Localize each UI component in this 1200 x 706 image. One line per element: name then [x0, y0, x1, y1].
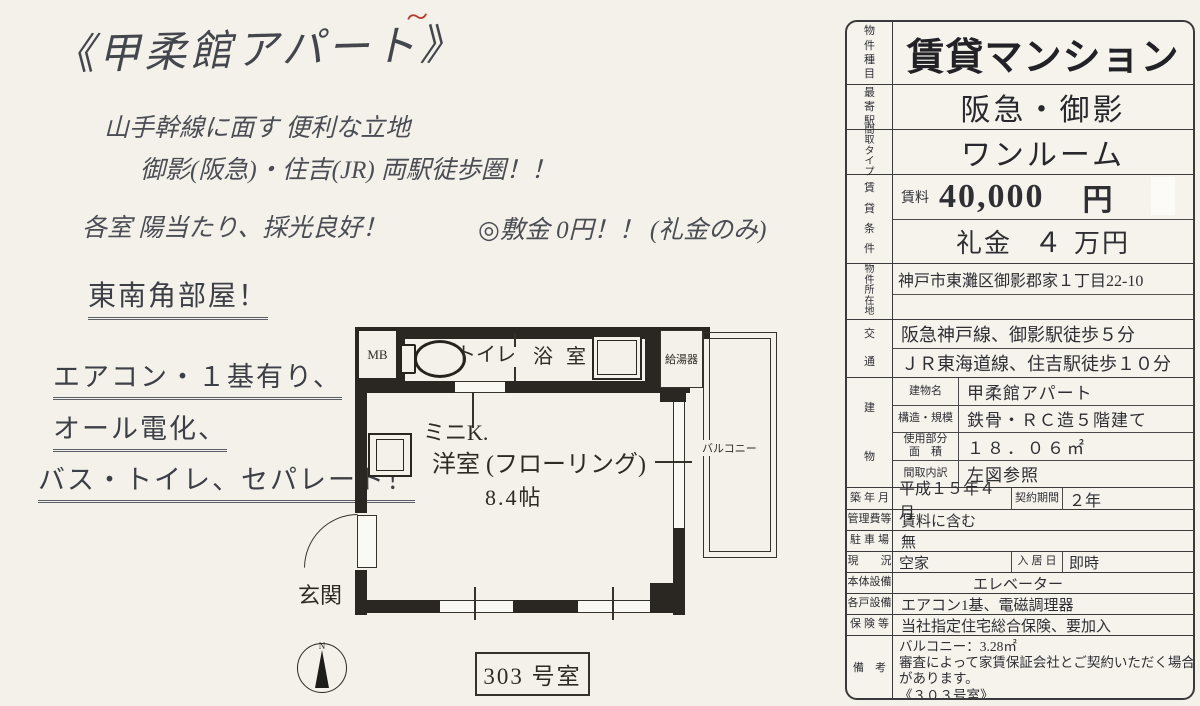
status-value: 空家 [893, 552, 1011, 572]
layout-type-value: ワンルーム [961, 130, 1125, 174]
movein-label: 入 居 日 [1017, 555, 1056, 568]
page-title: 《甲柔館アパート》 [51, 11, 466, 83]
contract-value: ２年 [1063, 488, 1193, 509]
wall-bottom-2 [513, 600, 578, 613]
row-parking: 駐 車 場 無 [847, 530, 1193, 551]
remarks-header: 備 考 [847, 636, 893, 700]
layout-type-header: 間取タイプ [847, 130, 893, 174]
window-tick-right [655, 461, 692, 463]
row-unit-equipment: 各戸設備 エアコン1基、電磁調理器 [847, 593, 1193, 614]
room-number-label: 303 号室 [483, 657, 581, 691]
row-remarks: 備 考 バルコニー：3.28㎡ 審査によって家賃保証会社とご契約いただく場合 が… [847, 635, 1193, 700]
row-property-type: 物件種目 賃貸マンション [847, 22, 1193, 84]
whiteout-mark [1151, 177, 1175, 215]
structure-value: 鉄骨・ＲＣ造５階建て [959, 406, 1193, 433]
mb-box: MB [359, 331, 396, 378]
row-access: 交通 阪急神戸線、御影駅徒歩５分 ＪＲ東海道線、住吉駅徒歩１０分 [847, 319, 1193, 377]
rent-unit: 円 [1083, 175, 1113, 219]
row-layout-type: 間取タイプ ワンルーム [847, 129, 1193, 174]
flyer-page: 〜 《甲柔館アパート》 山手幹線に面す 便利な立地 御影(阪急)・住吉(JR) … [0, 0, 1200, 706]
nearest-station-header: 最寄駅 [847, 85, 893, 129]
area-row: 使用部分 面 積 １８．０６㎡ [893, 432, 1193, 460]
area-value: １８．０６㎡ [959, 433, 1193, 460]
bldg-equip-header-text: 本体設備 [848, 576, 892, 589]
key-money-amount: ４ [1034, 221, 1064, 261]
property-type-value: 賃貸マンション [906, 26, 1179, 81]
built-header: 築 年 月 [847, 488, 893, 509]
compass-north-label: N [319, 641, 326, 651]
structure-row: 構造・規模 鉄骨・ＲＣ造５階建て [893, 405, 1193, 433]
catch-line-stations: 御影(阪急)・住吉(JR) 両駅徒歩圏！！ [140, 150, 556, 186]
kitchen-sink-icon [368, 433, 412, 477]
rent-row: 賃料 40,000 円 [893, 175, 1193, 219]
status-header: 現 況 [847, 552, 893, 572]
room-size-label: 8.4帖 [485, 480, 543, 512]
access-header-text: 交通 [863, 321, 877, 376]
insurance-header-text: 保 険 等 [850, 618, 889, 631]
feature-all-electric: オール電化、 [53, 407, 227, 452]
mgmt-fee-header: 管理費等 [847, 510, 893, 530]
area-label: 使用部分 面 積 [904, 433, 948, 459]
movein-value: 即時 [1063, 552, 1193, 572]
toilet-label: トイレ [456, 338, 516, 367]
deposit-note: ◎敷金 0円！！ (礼金のみ) [478, 210, 766, 246]
wall-bath-heater [645, 327, 660, 390]
key-money-unit: 万円 [1074, 223, 1130, 260]
entrance-label: 玄関 [298, 578, 342, 610]
toilet-bath-divider-bottom [514, 367, 516, 381]
row-building: 建物 建物名 甲柔館アパート 構造・規模 鉄骨・ＲＣ造５階建て 使用部分 面 積… [847, 377, 1193, 487]
unit-equip-header-text: 各戸設備 [848, 597, 892, 610]
access-header: 交通 [847, 320, 893, 377]
remark-room-number: 《３０３号室》 [899, 688, 1195, 700]
balcony-label: バルコニー [700, 440, 759, 456]
rental-terms-header-text: 賃貸条件 [863, 178, 877, 259]
row-built: 築 年 月 平成１５年４月 契約期間 ２年 [847, 487, 1193, 509]
wall-bottom-1 [355, 600, 440, 613]
bath-label: 浴 室 [533, 340, 590, 369]
wall-under-heater [660, 388, 686, 402]
row-status: 現 況 空家 入 居 日 即時 [847, 551, 1193, 572]
catch-line-sunlight: 各室 陽当たり、採光良好！ [82, 208, 387, 244]
key-money-row: 礼金 ４ 万円 [893, 219, 1193, 262]
parking-header-text: 駐 車 場 [850, 534, 889, 547]
remark-balcony: バルコニー：3.28㎡ [899, 639, 1195, 655]
row-nearest-station: 最寄駅 阪急・御影 [847, 84, 1193, 129]
address-empty-line [893, 295, 1193, 319]
unit-equip-header: 各戸設備 [847, 594, 893, 614]
bathtub-inner [597, 340, 637, 375]
status-header-text: 現 況 [848, 555, 892, 568]
access-line-2: ＪＲ東海道線、住吉駅徒歩１０分 [893, 349, 1193, 377]
mgmt-fee-header-text: 管理費等 [848, 513, 892, 526]
water-heater-box: 給湯器 [660, 330, 703, 388]
property-spec-table: 物件種目 賃貸マンション 最寄駅 阪急・御影 間取タイプ ワンルーム 賃貸条件 … [845, 20, 1195, 700]
nearest-station-value: 阪急・御影 [961, 85, 1126, 129]
window-bottom-1 [440, 600, 513, 613]
feature-corner-room: 東南角部屋！ [88, 274, 268, 320]
rent-value: 40,000 [939, 178, 1045, 216]
compass-icon: N [297, 643, 347, 693]
building-name-row: 建物名 甲柔館アパート [893, 378, 1193, 405]
bathtub-icon [592, 335, 642, 380]
insurance-value: 当社指定住宅総合保険、要加入 [893, 615, 1193, 635]
rent-label: 賃料 [901, 187, 929, 207]
window-bottom-2 [578, 600, 651, 613]
toilet-bath-divider-top [514, 333, 516, 347]
row-insurance: 保 険 等 当社指定住宅総合保険、要加入 [847, 614, 1193, 635]
bldg-equip-header: 本体設備 [847, 573, 893, 593]
layout-type-header-text: 間取タイプ [863, 126, 877, 179]
door-gap-kitchen [455, 381, 505, 393]
building-header: 建物 [847, 378, 893, 487]
rental-terms-header: 賃貸条件 [847, 175, 893, 263]
property-type-header-text: 物件種目 [863, 24, 877, 81]
window-tick-2 [612, 587, 614, 620]
key-money-label: 礼金 [956, 223, 1012, 260]
remarks-header-text: 備 考 [853, 662, 886, 675]
building-header-text: 建物 [863, 384, 877, 481]
mini-kitchen-label: ミニK. [423, 415, 488, 447]
room-number-box: 303 号室 [475, 652, 590, 696]
built-header-text: 築 年 月 [850, 492, 889, 505]
entrance-door-arc [304, 514, 358, 568]
floor-plan: MB トイレ 浴 室 給湯器 バルコニー ミニK. 洋室 (フローリング) 8.… [280, 320, 800, 706]
water-heater-label: 給湯器 [665, 351, 698, 367]
parking-value: 無 [893, 531, 1193, 551]
parking-header: 駐 車 場 [847, 531, 893, 551]
catch-line-location: 山手幹線に面す 便利な立地 [104, 108, 410, 144]
main-room-label: 洋室 (フローリング) [432, 444, 646, 479]
address-value: 神戸市東灘区御影郡家１丁目22-10 [893, 264, 1193, 295]
window-tick-1 [474, 587, 476, 620]
insurance-header: 保 険 等 [847, 615, 893, 635]
row-address: 物件所在地 神戸市東灘区御影郡家１丁目22-10 [847, 263, 1193, 319]
access-line-1: 阪急神戸線、御影駅徒歩５分 [893, 320, 1193, 349]
address-header: 物件所在地 [847, 264, 893, 319]
structure-label: 構造・規模 [898, 412, 953, 425]
wall-corner-block [650, 583, 685, 613]
unit-equip-value: エアコン1基、電磁調理器 [893, 594, 1193, 614]
window-right [673, 400, 685, 528]
row-building-equipment: 本体設備 エレベーター [847, 572, 1193, 593]
kitchen-sink-inner [376, 439, 404, 471]
building-name-label: 建物名 [909, 385, 942, 398]
row-rental-terms: 賃貸条件 賃料 40,000 円 礼金 ４ 万円 [847, 174, 1193, 263]
building-name-value: 甲柔館アパート [959, 378, 1193, 405]
mgmt-fee-value: 賃料に含む [893, 510, 1193, 530]
contract-label: 契約期間 [1015, 492, 1059, 505]
bldg-equip-value: エレベーター [893, 573, 1193, 593]
remark-guarantee-1: 審査によって家賃保証会社とご契約いただく場合 [899, 655, 1195, 671]
compass-needle [315, 650, 329, 688]
built-value: 平成１５年４月 [893, 488, 1011, 509]
address-header-text: 物件所在地 [863, 265, 877, 318]
nearest-station-header-text: 最寄駅 [863, 86, 877, 129]
row-mgmt-fee: 管理費等 賃料に含む [847, 509, 1193, 530]
remark-guarantee-2: があります。 [899, 671, 1195, 687]
mb-label: MB [367, 347, 387, 363]
property-type-header: 物件種目 [847, 22, 893, 84]
entrance-door-leaf [357, 515, 377, 568]
